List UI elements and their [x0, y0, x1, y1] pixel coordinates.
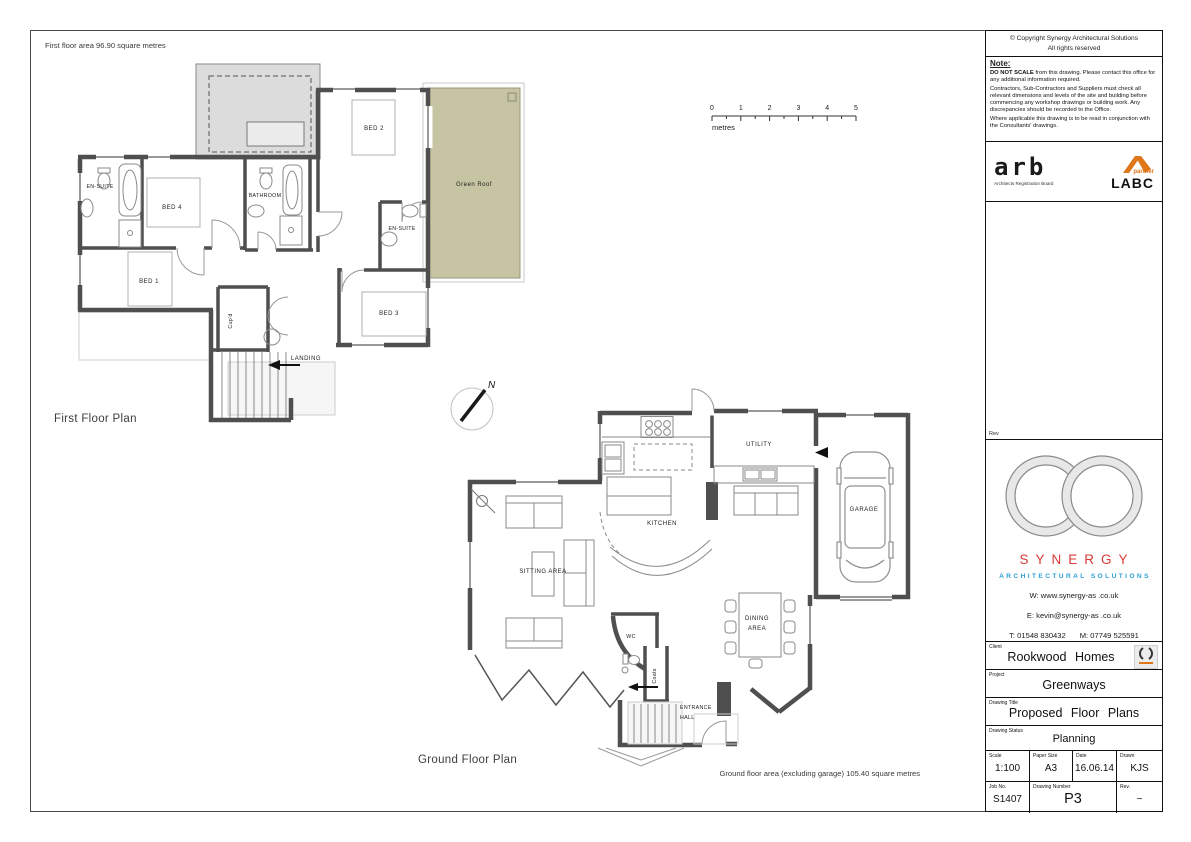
revision-cell: Rev. ~ — [1117, 782, 1162, 813]
date-cell: Date 16.06.14 — [1073, 751, 1117, 782]
brand-email: E: kevin@synergy-as .co.uk — [1027, 611, 1121, 620]
project-value: Greenways — [986, 670, 1162, 692]
ground-floor-plan: KITCHEN UTILITY GARAGE SITTING AREA DINI… — [418, 389, 920, 778]
note-paragraph-1: DO NOT SCALE from this drawing. Please c… — [990, 70, 1158, 84]
room-label-ensuite-a: EN-SUITE — [86, 184, 113, 190]
brand-box: SYNERGY ARCHITECTURAL SOLUTIONS W: www.s… — [986, 440, 1162, 642]
gf-stairs — [628, 683, 682, 744]
arb-logo: arb Architects Registration Board — [994, 157, 1054, 186]
family-sofa — [734, 486, 798, 515]
drawing-status-box: Drawing Status Planning — [986, 726, 1162, 751]
first-floor-area-note: First floor area 96.90 square metres — [45, 41, 166, 50]
north-arrow: N — [451, 380, 496, 430]
job-no-cell: Job No. S1407 — [986, 782, 1030, 813]
scale-tick-3: 3 — [796, 105, 800, 112]
wc-fixtures — [622, 654, 640, 673]
labc-logo: partner LABC — [1111, 153, 1154, 191]
drawing-title-box: Drawing Title Proposed Floor Plans — [986, 698, 1162, 726]
labc-wordmark: LABC — [1111, 175, 1154, 191]
drawing-title-label: Drawing Title — [989, 700, 1018, 706]
stair-void — [228, 362, 335, 415]
porch-steps — [598, 748, 684, 766]
drawing-sheet: EN-SUITE BED 4 BATHROOM BED 2 EN-SUITE B… — [0, 0, 1191, 842]
room-label-dining-2: AREA — [748, 626, 766, 632]
drawing-status-label: Drawing Status — [989, 728, 1023, 734]
note-box: Note: DO NOT SCALE from this drawing. Pl… — [986, 57, 1162, 142]
brand-phone: T: 01548 830432 M: 07749 525591 — [1009, 631, 1139, 640]
brand-name: SYNERGY — [1019, 552, 1134, 567]
title-block: © Copyright Synergy Architectural Soluti… — [985, 30, 1163, 812]
arb-caption: Architects Registration Board — [994, 181, 1054, 186]
room-label-bed2: BED 2 — [364, 126, 384, 132]
room-label-entrance-2: HALL — [680, 715, 694, 721]
revision-space: Rev — [986, 202, 1162, 440]
room-label-entrance-1: ENTRANCE — [680, 705, 712, 711]
scale-tick-2: 2 — [768, 105, 772, 112]
note-paragraph-3: Where applicable this drawing is to be r… — [990, 116, 1158, 130]
room-label-bed4: BED 4 — [162, 205, 182, 211]
room-label-bed1: BED 1 — [139, 279, 159, 285]
room-label-dining-1: DINING — [745, 616, 769, 622]
room-label-kitchen: KITCHEN — [647, 521, 677, 527]
copyright-line-1: © Copyright Synergy Architectural Soluti… — [986, 34, 1162, 44]
room-label-cupd: Cup'd — [228, 313, 234, 328]
wall-pier-entrance — [717, 682, 731, 716]
roof-below-outline — [79, 312, 210, 360]
folding-doors-zigzag — [475, 655, 624, 707]
project-label: Project — [989, 672, 1005, 678]
paper-size-cell: Paper Size A3 — [1030, 751, 1073, 782]
scale-unit-label: metres — [712, 123, 735, 132]
room-label-bed3: BED 3 — [379, 311, 399, 317]
scale-tick-1: 1 — [739, 105, 743, 112]
note-heading: Note: — [990, 59, 1158, 68]
wall-pier-kitchen — [706, 482, 718, 520]
room-label-bathroom: BATHROOM — [249, 193, 282, 199]
scale-tick-4: 4 — [825, 105, 829, 112]
logos-box: arb Architects Registration Board partne… — [986, 142, 1162, 202]
scale-row: Scale 1:100 Paper Size A3 Date 16.06.14 … — [986, 751, 1162, 782]
room-label-sitting-area: SITTING AREA — [519, 569, 566, 575]
room-label-garage: GARAGE — [850, 507, 879, 513]
brand-phone-m: M: 07749 525591 — [1080, 631, 1139, 640]
ff-fixtures — [81, 164, 426, 345]
rookwood-icon — [1137, 646, 1155, 661]
scale-tick-5: 5 — [854, 105, 858, 112]
room-label-coats: Coats — [652, 668, 658, 683]
client-label: Client — [989, 644, 1002, 650]
client-logo — [1134, 645, 1158, 669]
corner-chamfer — [471, 489, 495, 513]
brand-web: W: www.synergy-as .co.uk — [1030, 591, 1119, 600]
first-floor-plan-label: First Floor Plan — [54, 413, 137, 425]
room-label-landing: LANDING — [291, 356, 321, 362]
copyright-line-2: All rights reserved — [986, 44, 1162, 54]
porch-outline — [694, 714, 738, 744]
project-box: Project Greenways — [986, 670, 1162, 698]
stove — [477, 496, 488, 507]
arb-wordmark: arb — [994, 157, 1054, 179]
copyright-box: © Copyright Synergy Architectural Soluti… — [986, 31, 1162, 57]
drawn-cell: Drawn KJS — [1117, 751, 1162, 782]
ground-floor-area-note: Ground floor area (excluding garage) 105… — [719, 769, 920, 778]
room-label-ensuite-b: EN-SUITE — [388, 226, 415, 232]
gf-external-walls — [468, 411, 910, 747]
ground-floor-plan-label: Ground Floor Plan — [418, 754, 517, 766]
job-row: Job No. S1407 Drawing Number P3 Rev. ~ — [986, 782, 1162, 813]
scale-tick-0: 0 — [710, 105, 714, 112]
client-box: Client Rookwood Homes — [986, 642, 1162, 670]
utility-units — [714, 466, 814, 483]
room-label-wc: WC — [626, 634, 635, 640]
gf-windows — [466, 407, 893, 645]
floor-plans-canvas: EN-SUITE BED 4 BATHROOM BED 2 EN-SUITE B… — [30, 30, 985, 812]
room-label-green-roof: Green Roof — [456, 182, 492, 188]
brand-tagline: ARCHITECTURAL SOLUTIONS — [999, 573, 1151, 580]
revision-space-label: Rev — [989, 431, 999, 437]
brand-phone-t: T: 01548 830432 — [1009, 631, 1066, 640]
kitchen-units — [600, 417, 712, 576]
rooflight — [247, 122, 304, 146]
scale-bar: 0 1 2 3 4 5 metres — [710, 105, 858, 132]
garage-car — [837, 452, 893, 582]
scale-cell: Scale 1:100 — [986, 751, 1030, 782]
synergy-logo — [999, 448, 1149, 544]
note-paragraph-2: Contractors, Sub-Contractors and Supplie… — [990, 86, 1158, 114]
north-label: N — [488, 380, 496, 391]
drawing-number-cell: Drawing Number P3 — [1030, 782, 1117, 813]
room-label-utility: UTILITY — [746, 442, 772, 448]
first-floor-plan: EN-SUITE BED 4 BATHROOM BED 2 EN-SUITE B… — [45, 41, 692, 716]
